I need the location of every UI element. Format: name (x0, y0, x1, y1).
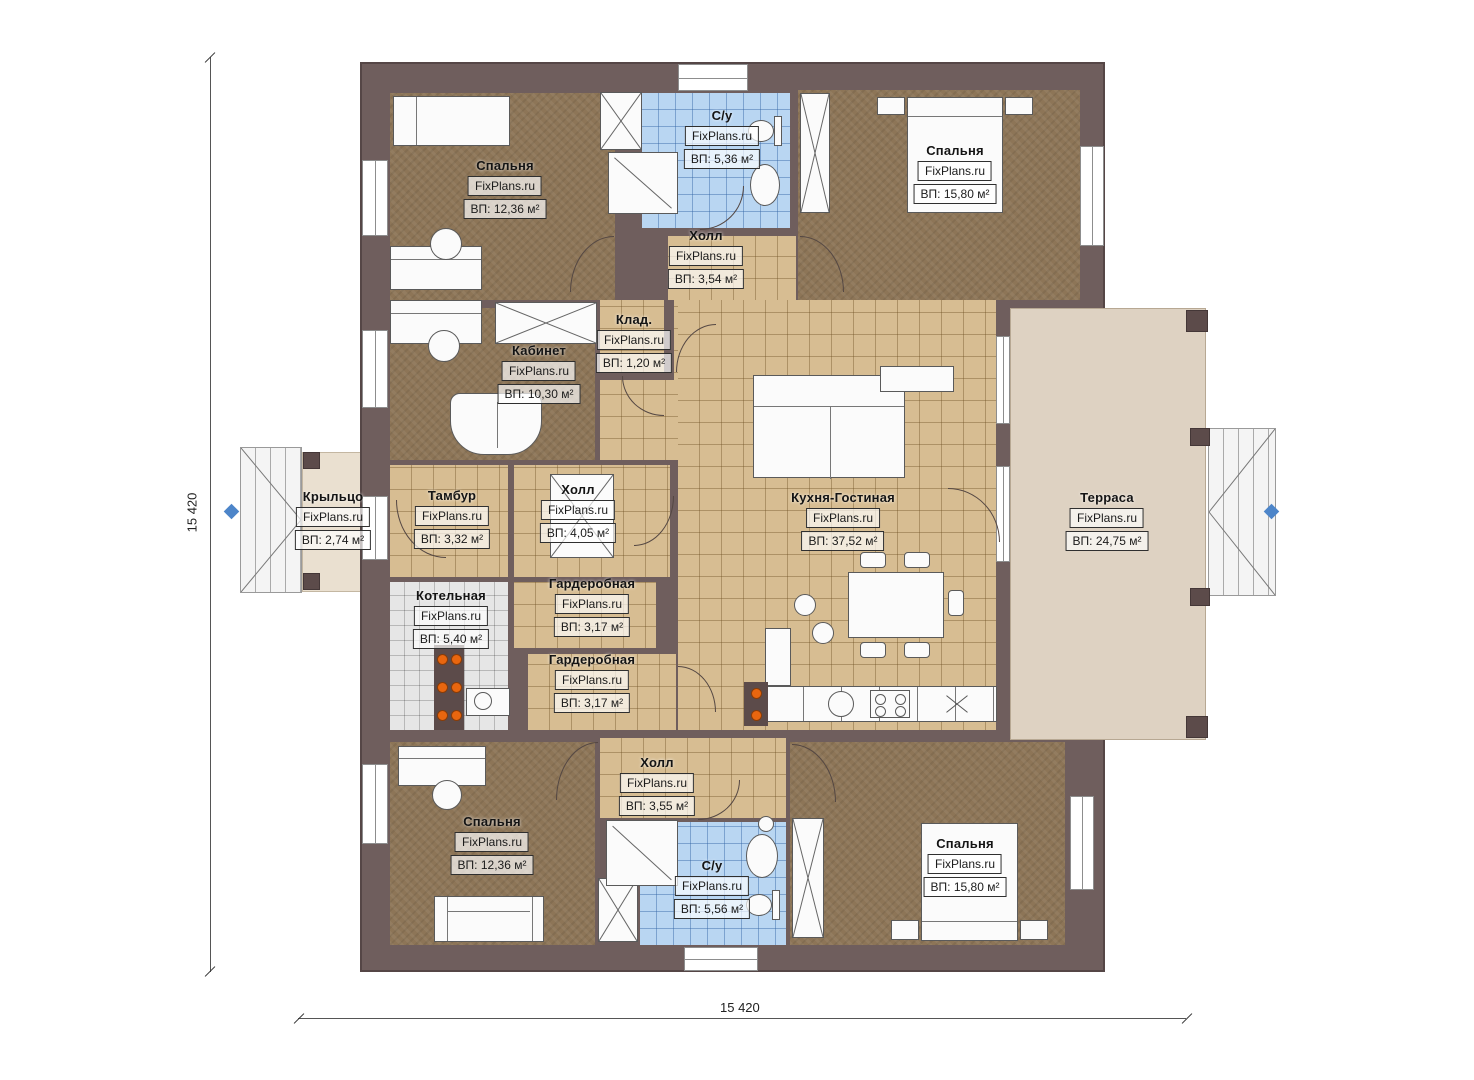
room-name: Кабинет (512, 343, 566, 358)
watermark: FixPlans.ru (455, 832, 529, 852)
room-area: ВП: 15,80 м² (924, 877, 1007, 897)
terrace-door-opening (996, 466, 1010, 562)
room-name: Спальня (936, 836, 994, 851)
room-name: Тамбур (428, 488, 476, 503)
toilet-cistern (774, 116, 782, 146)
room-label-porch: Крыльцо FixPlans.ru ВП: 2,74 м² (295, 489, 371, 550)
watermark: FixPlans.ru (541, 500, 615, 520)
room-label-wardrobe-lower: Гардеробная FixPlans.ru ВП: 3,17 м² (549, 652, 635, 713)
room-label-hall-top: Холл FixPlans.ru ВП: 3,54 м² (668, 228, 744, 289)
chair (428, 330, 460, 362)
window (362, 330, 388, 408)
room-label-hall-bottom: Холл FixPlans.ru ВП: 3,55 м² (619, 755, 695, 816)
dimension-line-vertical (210, 57, 211, 972)
sink (750, 164, 780, 206)
faucet-icon (758, 816, 774, 832)
room-name: Спальня (926, 143, 984, 158)
window (1080, 146, 1104, 246)
shower (608, 152, 678, 214)
wardrobe-cabinet (800, 93, 830, 213)
stool (794, 594, 816, 616)
terrace-pillar (1190, 428, 1210, 446)
stove (870, 690, 910, 718)
room-label-vestibule: Тамбур FixPlans.ru ВП: 3,32 м² (414, 488, 490, 549)
nightstand (877, 97, 905, 115)
room-label-bathroom-bottom: С/у FixPlans.ru ВП: 5,56 м² (674, 858, 750, 919)
sofa (434, 896, 544, 942)
room-area: ВП: 3,17 м² (554, 693, 630, 713)
room-label-bedroom-bottom-left: Спальня FixPlans.ru ВП: 12,36 м² (451, 814, 534, 875)
room-area: ВП: 24,75 м² (1066, 531, 1149, 551)
watermark: FixPlans.ru (928, 854, 1002, 874)
chair (432, 780, 462, 810)
watermark: FixPlans.ru (597, 330, 671, 350)
wardrobe-cabinet (600, 92, 642, 150)
terrace-pillar (1190, 588, 1210, 606)
radiator-equipment (744, 682, 768, 726)
room-label-pantry: Клад. FixPlans.ru ВП: 1,20 м² (596, 312, 672, 373)
nightstand (1005, 97, 1033, 115)
room-area: ВП: 4,05 м² (540, 523, 616, 543)
room-name: С/у (702, 858, 723, 873)
watermark: FixPlans.ru (296, 507, 370, 527)
watermark: FixPlans.ru (620, 773, 694, 793)
terrace-pillar (1186, 310, 1208, 332)
room-area: ВП: 37,52 м² (802, 531, 885, 551)
watermark: FixPlans.ru (555, 670, 629, 690)
room-name: Гардеробная (549, 576, 635, 591)
window (362, 160, 388, 236)
room-name: Клад. (616, 312, 652, 327)
console-table (880, 366, 954, 392)
room-area: ВП: 15,80 м² (914, 184, 997, 204)
room-area: ВП: 2,74 м² (295, 530, 371, 550)
dishwasher (942, 692, 972, 716)
room-area: ВП: 1,20 м² (596, 353, 672, 373)
room-name: Крыльцо (303, 489, 364, 504)
watermark: FixPlans.ru (1070, 508, 1144, 528)
room-label-wardrobe-upper: Гардеробная FixPlans.ru ВП: 3,17 м² (549, 576, 635, 637)
room-name: С/у (712, 108, 733, 123)
dining-table (848, 572, 944, 638)
chair (948, 590, 964, 616)
stool (812, 622, 834, 644)
room-name: Кухня-Гостиная (791, 490, 895, 505)
dimension-label-height: 15 420 (184, 493, 199, 533)
chair (430, 228, 462, 260)
room-label-bedroom-bottom-right: Спальня FixPlans.ru ВП: 15,80 м² (924, 836, 1007, 897)
wardrobe-cabinet (598, 878, 638, 942)
room-area: ВП: 12,36 м² (464, 199, 547, 219)
room-area: ВП: 3,54 м² (668, 269, 744, 289)
room-label-kitchen-living: Кухня-Гостиная FixPlans.ru ВП: 37,52 м² (791, 490, 895, 551)
room-name: Холл (561, 482, 594, 497)
room-area: ВП: 12,36 м² (451, 855, 534, 875)
room-area: ВП: 5,40 м² (413, 629, 489, 649)
room-label-office: Кабинет FixPlans.ru ВП: 10,30 м² (498, 343, 581, 404)
watermark: FixPlans.ru (685, 126, 759, 146)
room-label-bedroom-top-right: Спальня FixPlans.ru ВП: 15,80 м² (914, 143, 997, 204)
window (1070, 796, 1094, 890)
room-label-terrace: Терраса FixPlans.ru ВП: 24,75 м² (1066, 490, 1149, 551)
room-area: ВП: 3,17 м² (554, 617, 630, 637)
chair (904, 552, 930, 568)
kitchen-counter-return (765, 628, 791, 686)
shower (606, 820, 678, 886)
dimension-line-horizontal (298, 1018, 1186, 1019)
watermark: FixPlans.ru (806, 508, 880, 528)
room-name: Холл (689, 228, 722, 243)
watermark: FixPlans.ru (502, 361, 576, 381)
room-area: ВП: 5,36 м² (684, 149, 760, 169)
dimension-label-width: 15 420 (720, 1000, 760, 1015)
chair (860, 642, 886, 658)
watermark: FixPlans.ru (468, 176, 542, 196)
window (684, 947, 758, 971)
window (678, 64, 748, 91)
porch-pillar (303, 573, 320, 590)
floor-plan: 15 420 15 420 (0, 0, 1474, 1080)
room-name: Спальня (463, 814, 521, 829)
watermark: FixPlans.ru (918, 161, 992, 181)
single-bed (393, 96, 510, 146)
nightstand (891, 920, 919, 940)
room-area: ВП: 10,30 м² (498, 384, 581, 404)
terrace-pillar (1186, 716, 1208, 738)
room-area: ВП: 3,55 м² (619, 796, 695, 816)
room-name: Котельная (416, 588, 486, 603)
window (362, 764, 388, 844)
sink (746, 834, 778, 878)
boiler-dial-icon (474, 692, 492, 710)
room-label-boiler: Котельная FixPlans.ru ВП: 5,40 м² (413, 588, 489, 649)
room-label-hall-middle: Холл FixPlans.ru ВП: 4,05 м² (540, 482, 616, 543)
entry-marker-icon (224, 504, 240, 520)
room-name: Холл (640, 755, 673, 770)
kitchen-sink (828, 691, 854, 717)
room-label-bathroom-top: С/у FixPlans.ru ВП: 5,36 м² (684, 108, 760, 169)
room-label-bedroom-top-left: Спальня FixPlans.ru ВП: 12,36 м² (464, 158, 547, 219)
porch-pillar (303, 452, 320, 469)
porch-stairs (240, 447, 302, 593)
nightstand (1020, 920, 1048, 940)
watermark: FixPlans.ru (669, 246, 743, 266)
watermark: FixPlans.ru (555, 594, 629, 614)
room-name: Гардеробная (549, 652, 635, 667)
room-name: Спальня (476, 158, 534, 173)
boiler-equipment (434, 645, 464, 730)
watermark: FixPlans.ru (675, 876, 749, 896)
room-area: ВП: 3,32 м² (414, 529, 490, 549)
watermark: FixPlans.ru (415, 506, 489, 526)
wardrobe-cabinet (495, 302, 597, 344)
room-name: Терраса (1080, 490, 1134, 505)
chair (904, 642, 930, 658)
toilet-cistern (772, 890, 780, 920)
room-area: ВП: 5,56 м² (674, 899, 750, 919)
watermark: FixPlans.ru (414, 606, 488, 626)
chair (860, 552, 886, 568)
wardrobe-cabinet (792, 818, 824, 938)
window (996, 336, 1010, 424)
